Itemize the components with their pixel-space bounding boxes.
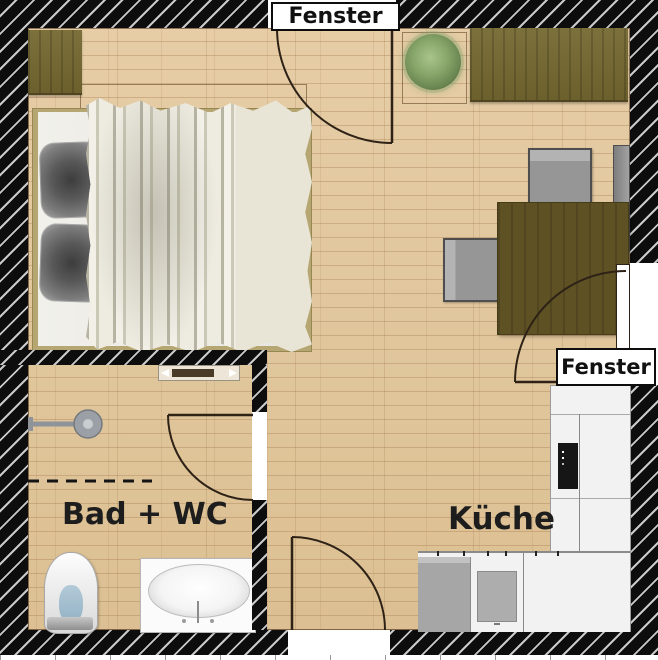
oven — [558, 443, 578, 489]
potted-plant — [405, 34, 461, 90]
bathroom-label: Bad + WC — [62, 500, 228, 530]
cabinet-handles — [437, 551, 439, 556]
cooktop — [477, 571, 517, 622]
dishwasher — [418, 557, 471, 632]
washbasin-counter — [140, 558, 256, 633]
window-top-label: Fenster — [271, 2, 400, 31]
tap-hole-icon — [182, 619, 186, 623]
wardrobe — [470, 28, 628, 102]
window-right-label: Fenster — [556, 348, 656, 386]
plan-edge-ruler — [0, 655, 658, 660]
window-right-label-text: Fenster — [561, 357, 651, 378]
toilet-cistern — [47, 617, 93, 630]
window-top-label-text: Fenster — [288, 6, 382, 28]
kitchen-label-text: Küche — [448, 501, 555, 537]
arrow-right-icon — [229, 369, 237, 377]
counter-divider — [551, 498, 630, 499]
tap-hole-icon — [210, 619, 214, 623]
arrow-left-icon — [161, 369, 169, 377]
bathroom-label-text: Bad + WC — [62, 497, 228, 532]
bathroom-wall-right-lower — [252, 500, 267, 630]
radiator-bar — [172, 369, 214, 377]
washbasin — [148, 564, 250, 618]
dresser — [28, 30, 82, 95]
floor-plan: Fenster Fenster Bad + WC Küche — [0, 0, 658, 660]
entrance-door-opening — [288, 630, 390, 656]
bed-blanket — [86, 98, 312, 352]
bathroom-wall-right-upper — [252, 365, 267, 412]
kitchen-counter-bottom — [418, 551, 630, 632]
dining-table — [497, 202, 629, 335]
counter-divider — [551, 414, 630, 415]
bathroom-wall-top — [0, 350, 267, 365]
radiator — [158, 365, 240, 381]
cooktop-mark — [494, 623, 500, 625]
faucet-icon — [197, 601, 199, 623]
kitchen-label: Küche — [448, 504, 555, 535]
bathroom-door-opening — [252, 412, 267, 500]
toilet — [44, 552, 98, 634]
oven-controls-icon — [562, 451, 564, 453]
counter-divider — [523, 553, 524, 632]
